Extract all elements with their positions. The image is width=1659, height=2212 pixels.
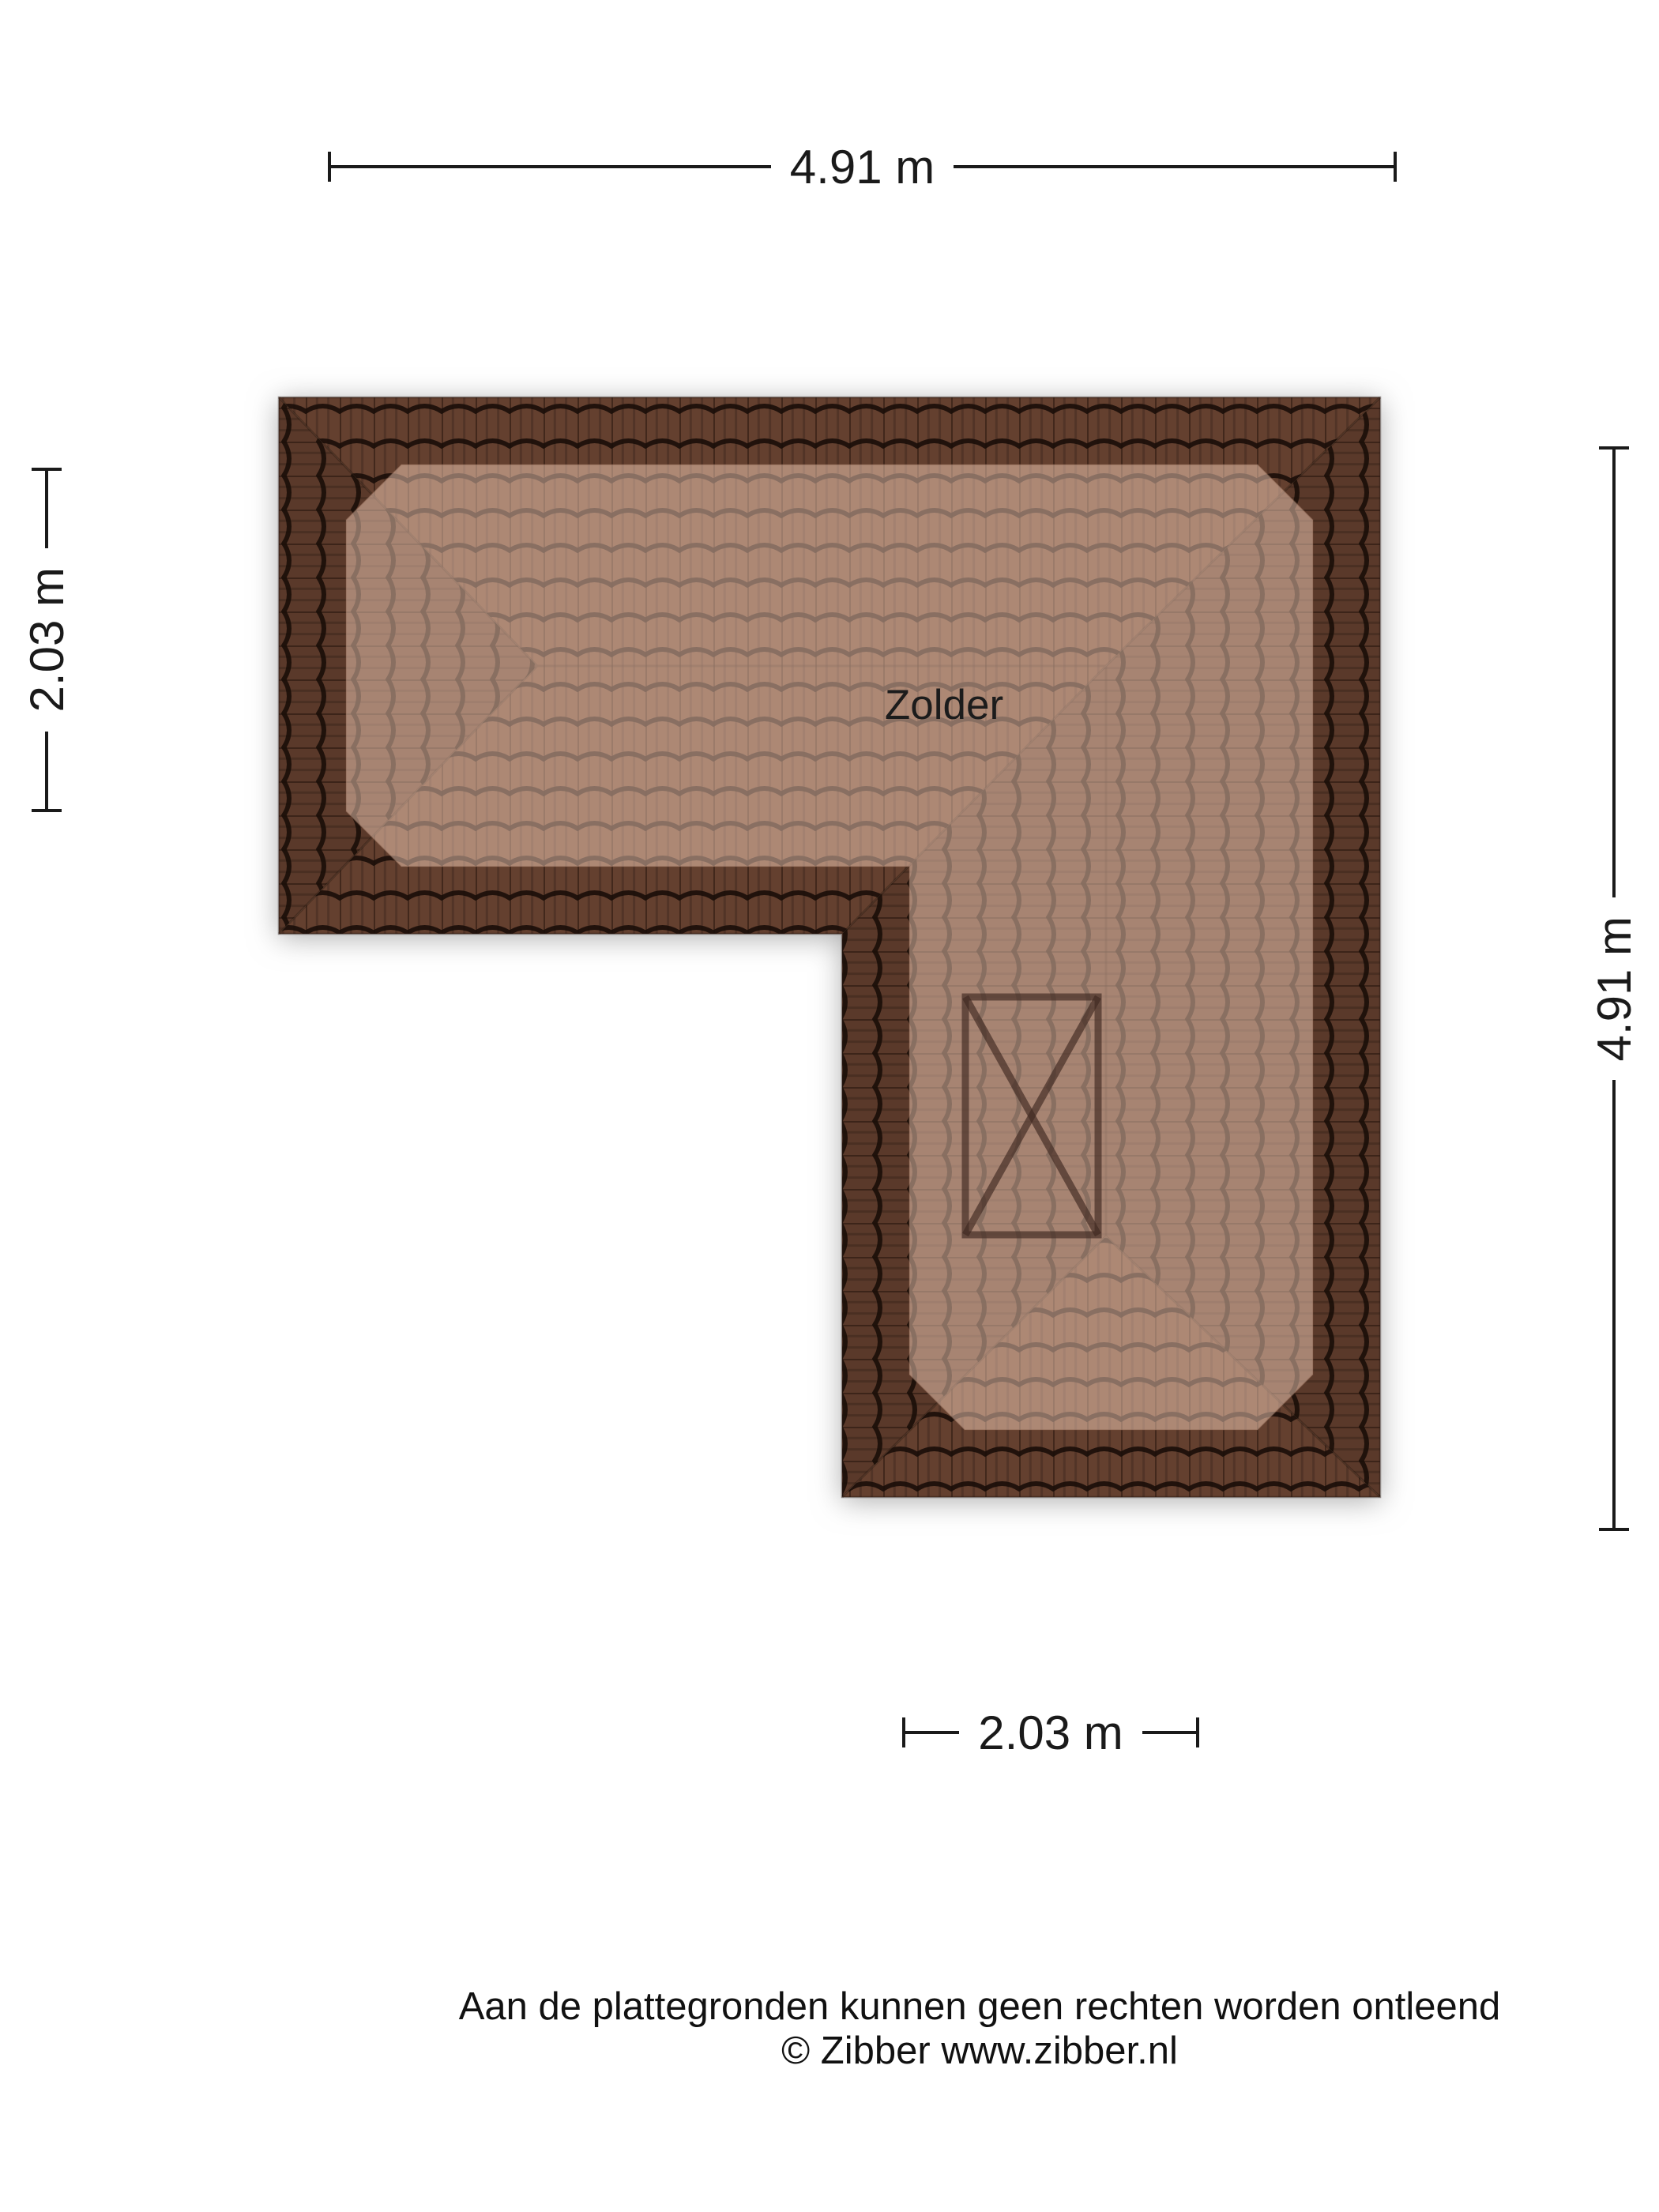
dimension-label: 2.03 m	[959, 1706, 1142, 1760]
dimension-label: 4.91 m	[1587, 897, 1642, 1080]
dimension-tick	[1196, 1717, 1199, 1747]
attic-floor-highlight	[346, 465, 1313, 1430]
dimension-line	[1612, 450, 1616, 897]
dimension-left: 2.03 m	[31, 468, 62, 812]
disclaimer-line2: © Zibber www.zibber.nl	[348, 2029, 1612, 2073]
dimension-label: 4.91 m	[771, 140, 954, 194]
dimension-top: 4.91 m	[328, 149, 1397, 184]
dimension-line	[954, 165, 1394, 168]
roof-plan	[0, 0, 1659, 2212]
room-label-zolder: Zolder	[857, 681, 1031, 729]
disclaimer-line1: Aan de plattegronden kunnen geen rechten…	[348, 1984, 1612, 2029]
dimension-tick	[1394, 152, 1397, 182]
floorplan-page: Zolder 4.91 m 2.03 m 4.91 m 2.03 m Aan d…	[0, 0, 1659, 2212]
dimension-label: 2.03 m	[20, 548, 74, 731]
dimension-tick	[32, 809, 62, 812]
dimension-line	[1612, 1080, 1616, 1528]
dimension-tick	[1599, 1528, 1629, 1531]
dimension-line	[905, 1731, 959, 1734]
dimension-line	[1142, 1731, 1196, 1734]
disclaimer: Aan de plattegronden kunnen geen rechten…	[348, 1984, 1612, 2073]
dimension-bottom: 2.03 m	[902, 1715, 1199, 1750]
dimension-right: 4.91 m	[1598, 446, 1630, 1531]
dimension-line	[45, 471, 48, 548]
dimension-line	[45, 732, 48, 809]
dimension-line	[331, 165, 771, 168]
